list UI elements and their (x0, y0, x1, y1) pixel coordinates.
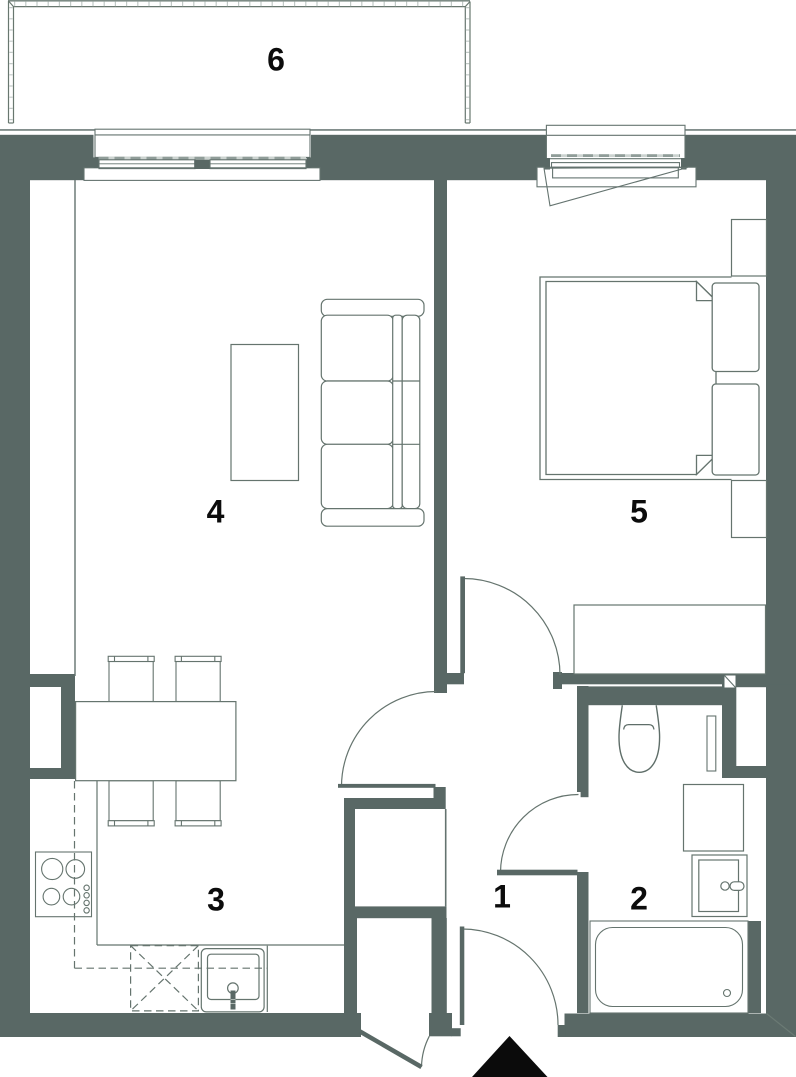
svg-text:4: 4 (207, 494, 225, 530)
svg-text:6: 6 (267, 42, 285, 78)
svg-text:5: 5 (630, 494, 648, 530)
svg-text:1: 1 (493, 879, 511, 915)
svg-text:2: 2 (630, 881, 648, 917)
svg-text:3: 3 (207, 882, 225, 918)
